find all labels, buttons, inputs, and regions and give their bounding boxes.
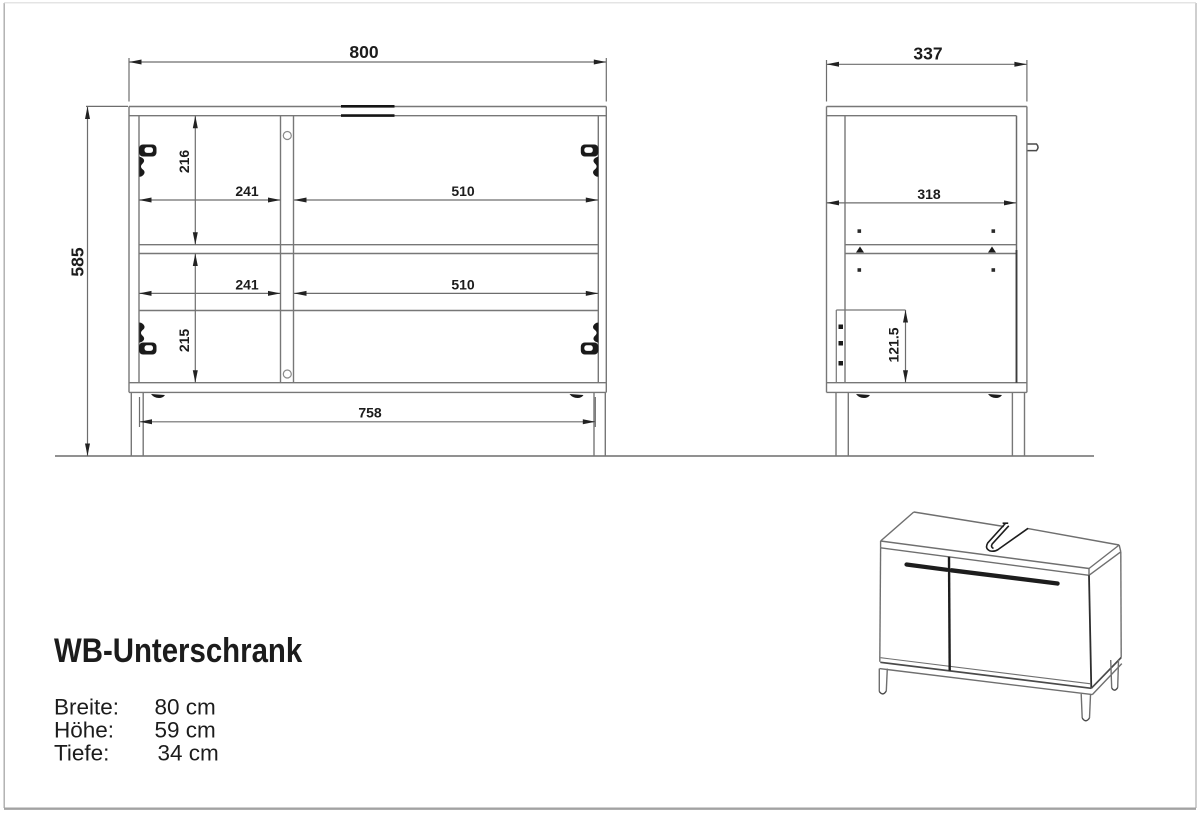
svg-text:318: 318 xyxy=(917,186,941,202)
svg-text:510: 510 xyxy=(451,183,475,199)
svg-text:216: 216 xyxy=(176,150,192,174)
svg-text:800: 800 xyxy=(349,42,378,62)
svg-text:121.5: 121.5 xyxy=(886,327,902,362)
svg-text:Tiefe:: Tiefe: xyxy=(54,740,109,765)
svg-text:758: 758 xyxy=(358,405,382,421)
svg-text:Breite:: Breite: xyxy=(54,695,119,720)
svg-text:Höhe:: Höhe: xyxy=(54,717,114,742)
svg-text:241: 241 xyxy=(235,276,259,292)
svg-text:80 cm: 80 cm xyxy=(155,695,216,720)
svg-text:241: 241 xyxy=(235,183,259,199)
svg-text:337: 337 xyxy=(913,44,942,64)
svg-text:34 cm: 34 cm xyxy=(158,740,219,765)
svg-text:59 cm: 59 cm xyxy=(155,717,216,742)
svg-text:585: 585 xyxy=(68,247,88,276)
svg-text:215: 215 xyxy=(176,329,192,353)
svg-text:WB-Unterschrank: WB-Unterschrank xyxy=(54,631,303,670)
svg-text:510: 510 xyxy=(451,276,475,292)
